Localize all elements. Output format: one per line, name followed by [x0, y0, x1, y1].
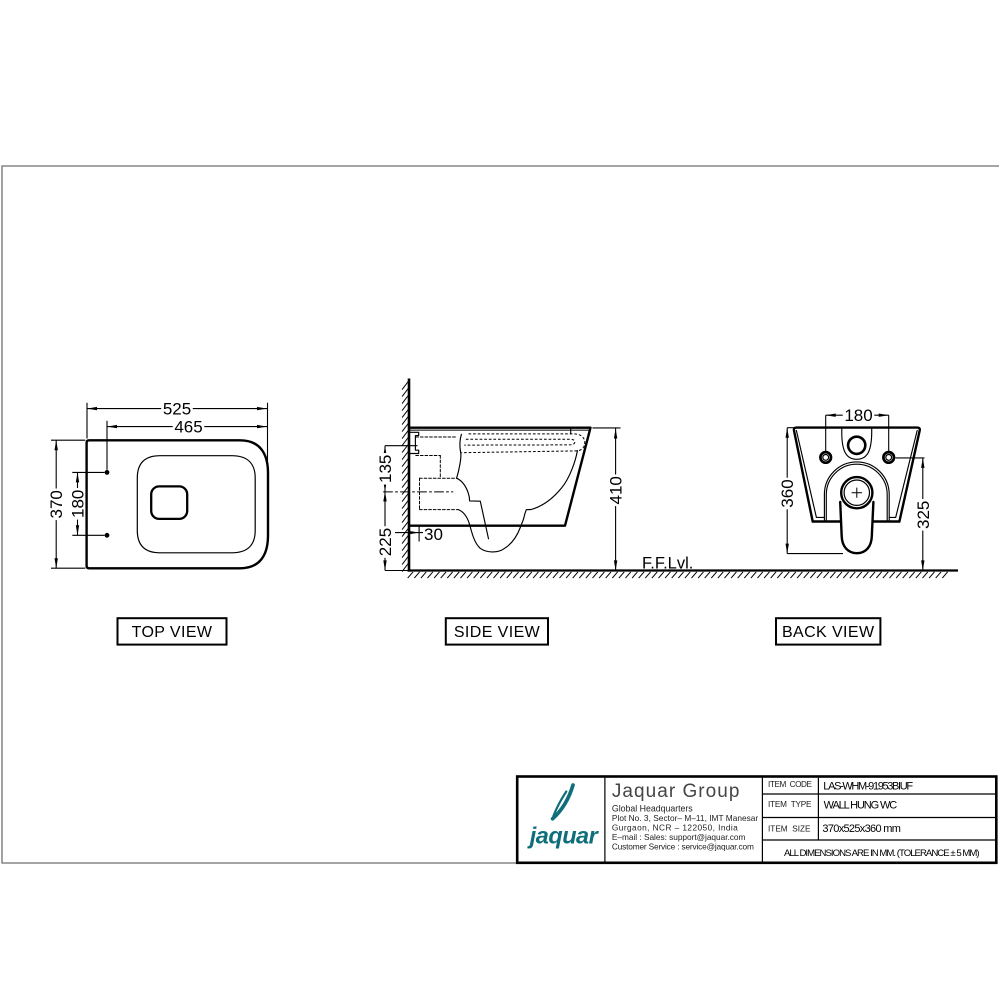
svg-text:370: 370 — [47, 490, 66, 518]
svg-text:ALL DIMENSIONS ARE IN MM. (TOL: ALL DIMENSIONS ARE IN MM. (TOLERANCE ± 5… — [784, 848, 980, 859]
svg-text:325: 325 — [914, 501, 933, 529]
svg-text:ITEM CODE: ITEM CODE — [768, 780, 813, 789]
svg-text:135: 135 — [376, 455, 395, 483]
svg-text:30: 30 — [424, 525, 443, 544]
svg-text:465: 465 — [174, 418, 202, 437]
svg-text:Gurgaon, NCR – 122050, India: Gurgaon, NCR – 122050, India — [612, 822, 738, 832]
svg-text:BACK VIEW: BACK VIEW — [782, 624, 875, 641]
svg-text:jaquar: jaquar — [527, 823, 600, 849]
svg-text:F.F.Lvl.: F.F.Lvl. — [642, 555, 693, 573]
svg-text:Jaquar Group: Jaquar Group — [612, 781, 740, 802]
svg-text:Customer Service : service@jaq: Customer Service : service@jaquar.com — [612, 841, 754, 851]
svg-text:ITEM TYPE: ITEM TYPE — [768, 800, 812, 809]
svg-text:SIDE VIEW: SIDE VIEW — [454, 624, 541, 641]
svg-text:225: 225 — [376, 528, 395, 556]
svg-text:WALL HUNG WC: WALL HUNG WC — [824, 800, 898, 812]
svg-text:410: 410 — [607, 476, 626, 504]
svg-text:360: 360 — [778, 479, 797, 507]
svg-text:180: 180 — [844, 406, 872, 425]
svg-text:525: 525 — [163, 400, 191, 419]
svg-text:180: 180 — [69, 490, 88, 518]
svg-text:370x525x360 mm: 370x525x360 mm — [822, 823, 901, 835]
svg-text:ITEM SIZE: ITEM SIZE — [768, 825, 811, 834]
svg-text:LAS-WHM-91953BIUF: LAS-WHM-91953BIUF — [823, 780, 913, 792]
svg-text:TOP VIEW: TOP VIEW — [132, 624, 213, 641]
